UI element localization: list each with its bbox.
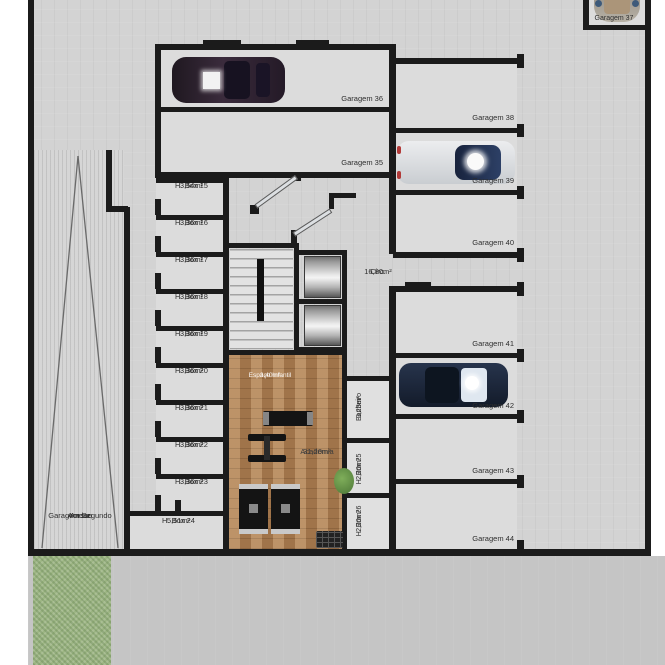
wall-cap bbox=[517, 410, 524, 423]
door-jamb bbox=[155, 310, 161, 326]
hbox-17-area: 3,36m² bbox=[180, 256, 203, 265]
wall bbox=[645, 0, 651, 30]
garage-44-label: Garagem 44 bbox=[452, 534, 514, 543]
garage-42-label: Garagem 42 bbox=[452, 401, 514, 410]
wall-stub bbox=[203, 40, 241, 49]
gym-machine-1 bbox=[239, 484, 268, 534]
spine-wall-upper bbox=[389, 44, 396, 254]
door-jamb bbox=[155, 236, 161, 252]
wall-cap bbox=[517, 54, 524, 68]
outer-wall-bottom bbox=[28, 549, 651, 556]
gym-barbell-rack bbox=[238, 434, 295, 464]
ramp-label-line3: Andar bbox=[70, 512, 90, 521]
wall bbox=[299, 250, 347, 255]
circulation-area: 16,80m² bbox=[364, 268, 392, 277]
hbox-22-area: 3,36m² bbox=[180, 441, 203, 450]
ramp-wall-jog-v bbox=[106, 150, 112, 212]
wall-cap bbox=[517, 186, 524, 199]
garage-43-label: Garagem 43 bbox=[452, 466, 514, 475]
wall bbox=[583, 25, 649, 30]
garage-37-label: Garagem 37 bbox=[583, 14, 645, 23]
hbox-20-area: 3,36m² bbox=[180, 367, 203, 376]
door-jamb bbox=[155, 273, 161, 289]
hbox-15-area: 3,54m² bbox=[180, 182, 203, 191]
wall-cap bbox=[517, 248, 524, 262]
outer-wall-right bbox=[645, 25, 651, 556]
door-jamb bbox=[155, 384, 161, 400]
wall bbox=[393, 58, 523, 64]
door-jamb bbox=[175, 500, 181, 516]
garage-39-label: Garagem 39 bbox=[452, 176, 514, 185]
gym-wall-top bbox=[227, 350, 347, 355]
hbox-23-area: 3,36m² bbox=[180, 478, 203, 487]
garage-35-label: Garagem 35 bbox=[321, 158, 383, 167]
hbox-21-area: 3,36m² bbox=[180, 404, 203, 413]
wall bbox=[155, 107, 395, 112]
wall-cap bbox=[517, 349, 524, 362]
floor-plan: Garagem 35 Garagem 36 Garagem 37 Garagem… bbox=[0, 0, 665, 665]
wall bbox=[393, 252, 523, 258]
wall-cap bbox=[517, 124, 524, 137]
hbox-18-area: 3,36m² bbox=[180, 293, 203, 302]
wall bbox=[393, 414, 523, 419]
wall bbox=[393, 128, 523, 133]
hbox-25-label: H. Box 25 2,20m² bbox=[356, 439, 376, 499]
wall-cap bbox=[517, 540, 524, 552]
door-jamb bbox=[155, 421, 161, 437]
hbox-25-area: 2,20m² bbox=[356, 458, 364, 480]
plant bbox=[334, 468, 354, 494]
hbox-16-area: 3,36m² bbox=[180, 219, 203, 228]
wall-cap bbox=[517, 475, 524, 488]
hbox-26-label: H. Box 26 2,20m² bbox=[356, 491, 376, 551]
gym-flat-bench bbox=[263, 411, 313, 426]
garage-41-label: Garagem 41 bbox=[452, 339, 514, 348]
garage-36-label: Garagem 36 bbox=[321, 94, 383, 103]
kids-space-area: 3,40m² bbox=[260, 372, 280, 380]
hbox-19-area: 3,36m² bbox=[180, 330, 203, 339]
wall bbox=[393, 479, 523, 484]
ramp-wall-jog-h bbox=[106, 206, 128, 212]
ramp-wall-right bbox=[124, 207, 130, 549]
wall-cap bbox=[517, 282, 524, 296]
gym-weight-rack bbox=[316, 531, 343, 548]
gym-machine-2 bbox=[271, 484, 300, 534]
car-garage-36 bbox=[172, 57, 285, 103]
wall bbox=[155, 44, 395, 50]
bathroom-area: 3,23m² bbox=[356, 396, 364, 418]
wall-stub bbox=[296, 40, 329, 49]
wall bbox=[393, 190, 523, 195]
wall bbox=[393, 353, 523, 358]
wall-stub bbox=[329, 193, 334, 209]
garage-38-label: Garagem 38 bbox=[452, 113, 514, 122]
bathroom-label: Banheiro 3,23m² bbox=[356, 377, 376, 437]
hbox-26-area: 2,20m² bbox=[356, 510, 364, 532]
hbox-24-area: 5,51m² bbox=[167, 517, 190, 526]
wall bbox=[299, 299, 347, 304]
door-jamb bbox=[155, 495, 161, 511]
door-jamb bbox=[155, 347, 161, 363]
gym-area: 31,20m² bbox=[303, 448, 331, 457]
door-jamb bbox=[155, 458, 161, 474]
wall bbox=[227, 243, 299, 248]
outer-wall-left bbox=[28, 0, 34, 556]
garage-40-label: Garagem 40 bbox=[452, 238, 514, 247]
door-jamb bbox=[155, 199, 161, 215]
gym-wall-right bbox=[342, 250, 347, 549]
wall-stub bbox=[405, 282, 431, 291]
